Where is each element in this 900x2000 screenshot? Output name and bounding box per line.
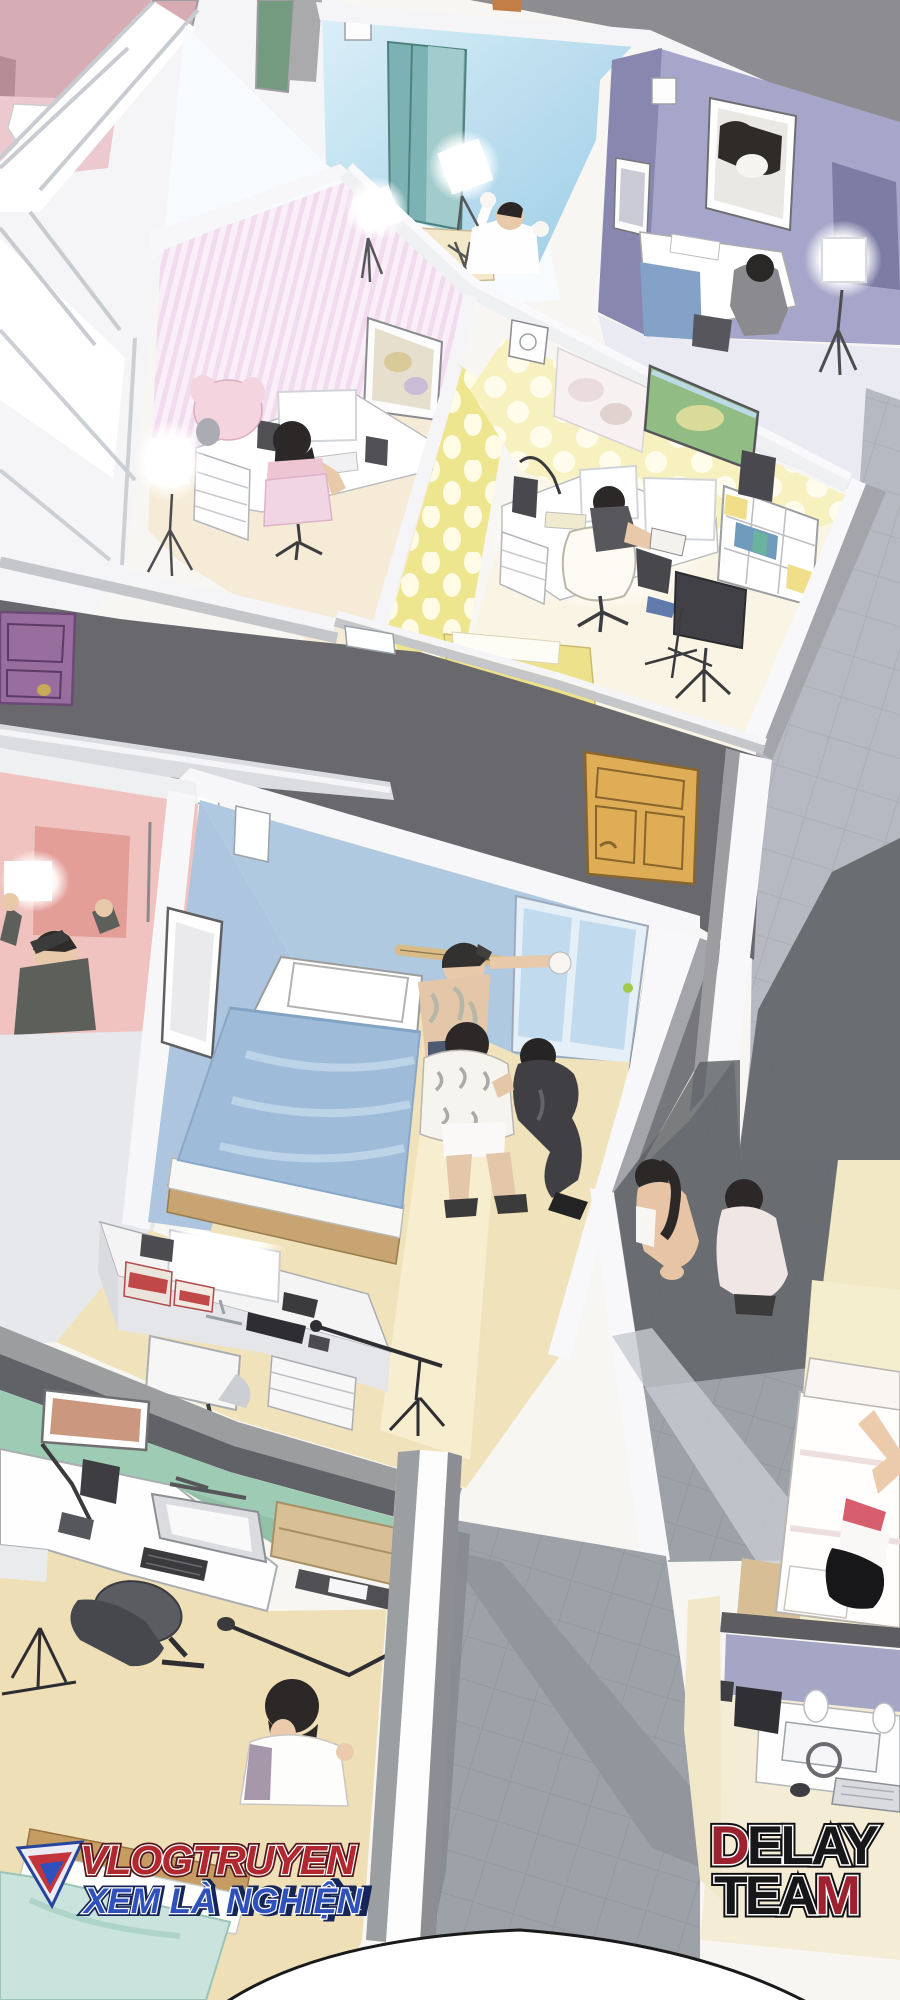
svg-text:TEAM: TEAM: [714, 1864, 858, 1926]
svg-text:VLOGTRUYEN: VLOGTRUYEN: [80, 1837, 357, 1883]
svg-text:XEM LÀ NGHIỆN: XEM LÀ NGHIỆN: [82, 1881, 363, 1921]
